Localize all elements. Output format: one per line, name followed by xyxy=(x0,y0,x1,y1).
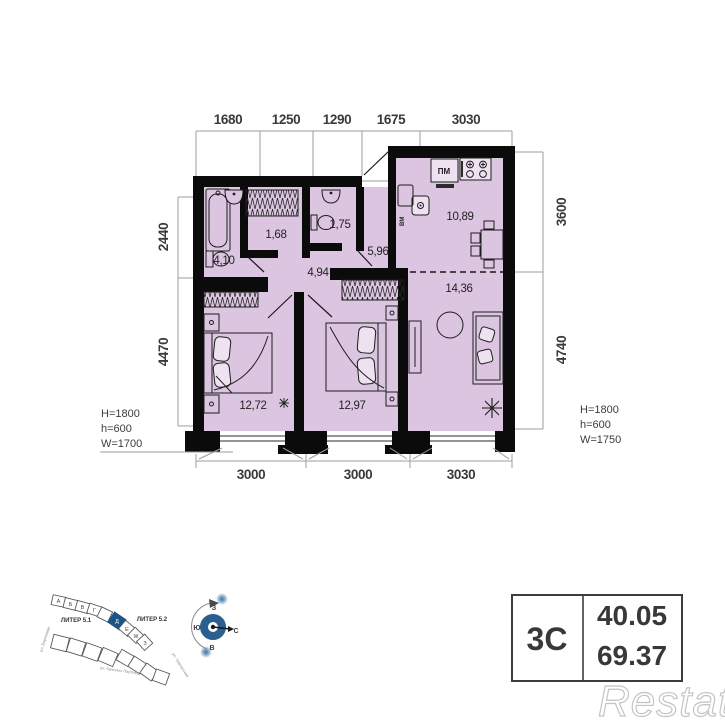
site-block-a: А xyxy=(57,599,61,605)
living-area-value: 40.05 xyxy=(597,600,667,631)
compass: З Ю С В xyxy=(192,593,239,658)
dim-left-1: 2440 xyxy=(156,223,171,251)
round-table xyxy=(437,312,463,338)
room-area-bedroom2: 12,97 xyxy=(338,400,365,412)
tv-unit xyxy=(409,321,421,373)
room-area-hall: 4,94 xyxy=(307,267,329,279)
room-area-kitchen: 10,89 xyxy=(446,211,473,223)
window-spec-left-H: H=1800 xyxy=(101,408,140,420)
room-area-hallway: 5,96 xyxy=(367,246,388,258)
floor-area xyxy=(204,187,503,431)
window-bedroom1 xyxy=(220,436,285,441)
site-block-d: Д xyxy=(115,619,119,625)
compass-needle xyxy=(213,627,230,629)
windows xyxy=(220,436,495,441)
site-block-v: В xyxy=(81,605,85,611)
dim-bottom-2: 3000 xyxy=(344,467,372,482)
washing-machine-label: ВМ xyxy=(400,217,406,226)
window-spec-left-h: h=600 xyxy=(101,423,132,435)
dim-top-5: 3030 xyxy=(452,112,480,127)
site-block-zh: Ж xyxy=(133,634,138,640)
dim-top-4: 1675 xyxy=(377,112,406,127)
liter-5-1-label: ЛИТЕР 5.1 xyxy=(61,618,92,624)
street-label-left: ул. Берёзовая xyxy=(38,626,51,653)
plant xyxy=(482,398,502,418)
compass-north-label: С xyxy=(233,628,238,635)
window-living xyxy=(430,436,495,441)
wardrobe-bedroom1 xyxy=(204,292,258,307)
window-spec-right-H: H=1800 xyxy=(580,404,619,416)
dim-left-2: 4470 xyxy=(156,338,171,366)
room-area-wc: 1,75 xyxy=(329,219,350,231)
compass-south-label: Ю xyxy=(193,625,200,632)
site-plan: А Б В Г Д Е Ж З ЛИТЕР 5.1 ЛИТЕР 5.2 ул. … xyxy=(38,595,190,685)
room-area-bathroom: 4,10 xyxy=(213,255,234,267)
window-spec-right-W: W=1750 xyxy=(580,434,621,446)
window-spec-right-h: h=600 xyxy=(580,419,611,431)
info-table: 3С 40.05 69.37 xyxy=(512,595,682,681)
sofa xyxy=(473,312,503,384)
window-bedroom2 xyxy=(327,436,392,441)
entrance-door-leaf xyxy=(364,151,389,175)
room-area-bedroom1: 12,72 xyxy=(239,400,266,412)
window-spec-left-W: W=1700 xyxy=(101,438,142,450)
floorplan-canvas: ПМ ВМ xyxy=(0,0,725,725)
site-block-e: Е xyxy=(125,627,129,633)
room-area-living: 14,36 xyxy=(445,283,472,295)
dim-right-2: 4740 xyxy=(554,336,569,364)
wardrobe-closet xyxy=(246,190,298,216)
dim-bottom-1: 3000 xyxy=(237,467,265,482)
chandelier-bedroom1 xyxy=(279,398,289,408)
compass-west-label: З xyxy=(212,605,217,612)
street-label-right: ул. Черкасская xyxy=(171,652,190,678)
floor-plan: ПМ ВМ xyxy=(185,146,515,454)
compass-east-label: В xyxy=(209,645,214,652)
total-area-value: 69.37 xyxy=(597,640,667,671)
dim-top-3: 1290 xyxy=(323,112,351,127)
dim-top-1: 1680 xyxy=(214,112,242,127)
kitchen-sink xyxy=(412,196,429,215)
layout-type-label: 3С xyxy=(527,621,568,657)
site-block-g: Г xyxy=(93,608,96,614)
dim-right-1: 3600 xyxy=(554,198,569,226)
window-spec-right: H=1800 h=600 W=1750 xyxy=(580,404,621,446)
stove xyxy=(460,158,491,180)
dim-top-2: 1250 xyxy=(272,112,300,127)
room-area-wardrobe: 1,68 xyxy=(265,229,286,241)
compass-center-dot xyxy=(211,625,215,629)
dim-bottom-3: 3030 xyxy=(447,467,475,482)
wc-sink xyxy=(322,190,340,203)
bathroom-sink xyxy=(225,190,243,204)
dishwasher-label: ПМ xyxy=(438,167,451,176)
watermark: Restate xyxy=(598,677,725,725)
liter-5-2-label: ЛИТЕР 5.2 xyxy=(137,617,168,623)
wardrobe-bedroom2 xyxy=(342,280,404,300)
site-block-b: Б xyxy=(69,602,73,608)
